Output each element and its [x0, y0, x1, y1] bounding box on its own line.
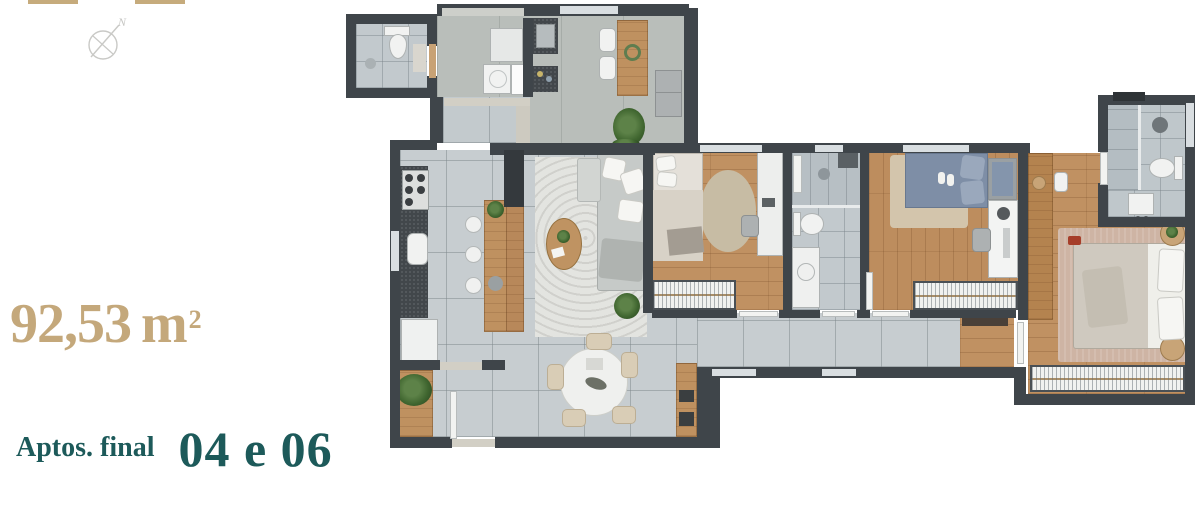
wall — [652, 310, 737, 318]
master-shower-glass — [1138, 105, 1141, 190]
bathroom-window — [815, 145, 843, 152]
master-pillow — [1157, 248, 1185, 292]
hall-threshold — [444, 98, 530, 106]
burner — [405, 186, 413, 194]
kitchen-sink — [407, 233, 428, 265]
burner — [417, 186, 425, 194]
master-wardrobe — [1030, 365, 1185, 392]
dining-chair — [612, 406, 636, 424]
compass-icon: N — [78, 12, 134, 70]
wall — [390, 140, 400, 447]
entry-plant — [396, 374, 432, 406]
kitchen-tall-cabinet — [504, 150, 524, 207]
washing-machine-door — [489, 70, 507, 88]
master-door-leaf — [1017, 322, 1024, 364]
apartments-label: Aptos. final04 e 06 — [16, 424, 333, 474]
dining-chair — [621, 352, 638, 378]
wall — [430, 97, 443, 143]
powder-shelf — [413, 44, 426, 72]
area-label: 92,53m2 — [10, 296, 201, 352]
bed-throw — [667, 226, 705, 256]
kitchen-door-sill — [440, 362, 482, 370]
master-pillow — [1157, 296, 1185, 340]
desk-lamp — [997, 207, 1010, 220]
wall — [684, 8, 698, 148]
legend-swatch — [135, 0, 185, 4]
office-chair — [599, 56, 616, 80]
window-seat-cushion — [992, 162, 1013, 196]
bedroom1-wardrobe — [652, 280, 736, 310]
table-wreath — [624, 44, 641, 61]
dining-chair — [547, 364, 564, 390]
coffee-table — [546, 218, 582, 270]
wall — [427, 14, 437, 46]
wall — [393, 360, 440, 370]
bathroom-door-leaf — [793, 155, 802, 193]
master-bath-window — [1186, 103, 1194, 147]
wall — [482, 360, 505, 370]
floor-plan-page: N 92,53m2 Aptos. final04 e 06 — [0, 0, 1200, 510]
laundry-cabinet — [490, 28, 523, 62]
cleaning-item — [537, 71, 543, 77]
master-toilet-tank — [1174, 156, 1183, 180]
wall — [346, 14, 437, 24]
bar-bottles — [679, 412, 694, 426]
red-slippers — [1068, 236, 1081, 245]
kitchen-window — [391, 231, 399, 271]
bar-stool — [465, 246, 482, 263]
island-bowl — [488, 276, 503, 291]
bar-stool — [465, 277, 482, 294]
powder-shower-drain — [365, 58, 376, 69]
lounge-bench — [655, 70, 682, 117]
compass-north-label: N — [117, 15, 127, 29]
shower-niche — [838, 153, 858, 168]
sofa-pillow — [617, 198, 645, 223]
area-unit-sup: 2 — [189, 305, 201, 334]
toilet-bowl — [800, 213, 824, 235]
desk-keyboard — [1003, 228, 1010, 258]
wall — [910, 310, 1016, 318]
laundry-bin — [1054, 172, 1068, 192]
bed-pillow — [656, 171, 677, 188]
bedroom1-window — [700, 145, 762, 152]
corridor-floor — [697, 313, 960, 367]
dining-chair — [586, 333, 612, 350]
master-shower-floor — [1108, 105, 1140, 190]
wall — [346, 88, 437, 98]
window — [560, 6, 618, 14]
nightstand-plant — [1166, 226, 1178, 238]
wall — [523, 18, 533, 97]
master-bed-throw — [1082, 266, 1129, 328]
legend-swatch — [28, 0, 78, 4]
desk-chair — [972, 228, 991, 252]
coffee-table-plant — [557, 230, 570, 243]
wall — [1018, 143, 1028, 320]
wall — [390, 437, 452, 448]
wall — [1098, 217, 1195, 227]
bed-pillow-blue — [960, 180, 985, 205]
master-bath-door-leaf — [1100, 152, 1108, 185]
rain-shower-head — [1152, 117, 1168, 133]
sofa-chaise — [577, 158, 601, 202]
living-plant — [614, 293, 640, 319]
burner — [405, 198, 413, 206]
bench-seam — [655, 92, 682, 93]
wall — [427, 76, 437, 98]
window — [442, 8, 524, 16]
sofa-throw — [598, 238, 646, 282]
bedroom1-door-leaf — [739, 311, 778, 317]
shower-glass — [792, 205, 860, 208]
sneaker — [947, 174, 954, 186]
bedroom2-door-leaf — [872, 311, 909, 317]
burner — [417, 174, 425, 182]
desk-laptop — [762, 198, 775, 207]
apartments-prefix: Aptos. final — [16, 432, 154, 463]
wall — [346, 14, 356, 98]
bathroom-door-leaf — [822, 311, 855, 317]
wall — [857, 310, 870, 318]
bedroom2-window — [903, 145, 969, 152]
master-bath-sink — [1128, 193, 1154, 215]
sneaker — [938, 172, 945, 184]
closet-basket — [1032, 176, 1046, 190]
office-chair — [599, 28, 616, 52]
wall — [643, 143, 653, 313]
wall — [710, 367, 1022, 378]
wall — [495, 437, 710, 448]
island-plant — [487, 201, 504, 218]
master-toilet-bowl — [1149, 158, 1175, 178]
cleaning-item — [546, 76, 552, 82]
wall — [1018, 394, 1195, 405]
bedroom1-round-rug — [700, 170, 756, 252]
bar-stool — [465, 216, 482, 233]
shower-drain — [818, 168, 830, 180]
bed-pillow-blue — [960, 155, 986, 181]
vanity-sink — [797, 263, 815, 281]
corridor-window — [822, 369, 856, 376]
area-unit: m — [141, 293, 187, 355]
area-value: 92,53 — [10, 293, 131, 355]
desk-chair — [741, 215, 759, 237]
entry-door-sill — [452, 439, 495, 447]
entry-door-leaf — [450, 391, 457, 439]
dining-placemat — [586, 358, 603, 370]
dining-chair — [562, 409, 586, 427]
hall-threshold — [516, 106, 530, 143]
laundry-tub — [536, 24, 555, 48]
corridor-window — [712, 369, 756, 376]
bedroom2-wardrobe — [913, 281, 1018, 310]
kitchen-side-counter — [506, 205, 524, 332]
bed-pillow — [655, 155, 677, 173]
burner — [405, 174, 413, 182]
apartments-numbers: 04 e 06 — [178, 421, 332, 477]
wall — [697, 367, 720, 448]
wall — [783, 150, 792, 310]
bedroom2-door-leaf — [866, 272, 873, 310]
powder-door-leaf — [429, 44, 436, 78]
towel-rail — [1113, 92, 1145, 101]
wall — [779, 310, 820, 318]
refrigerator — [401, 319, 438, 362]
bar-bottles — [679, 390, 694, 402]
